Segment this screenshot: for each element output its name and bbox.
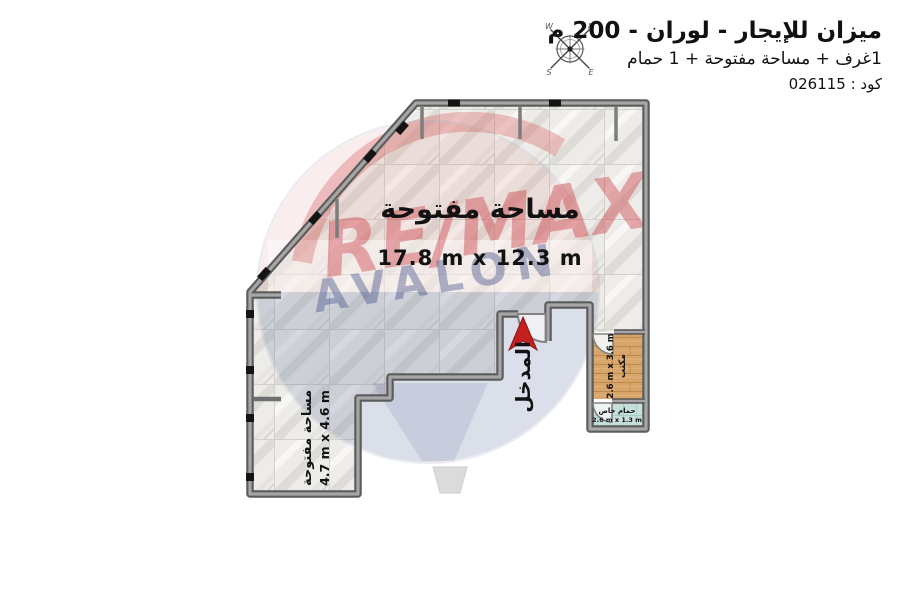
listing-header: ميزان للإيجار - لوران - 200 م 1غرف + مسا…	[548, 16, 882, 96]
main-area-dims: 17.8 m x 12.3 m	[330, 246, 630, 270]
bathroom-label: حمام خاص 2.6 m x 1.3 m	[588, 407, 646, 425]
secondary-area-dims: 4.7 m x 4.6 m	[316, 383, 333, 493]
main-area-label: مساحة مفتوحة	[330, 194, 630, 225]
office-name: مكتب	[617, 333, 629, 399]
office-label: 2.6 m x 3.6 m مكتب	[605, 333, 631, 399]
listing-code: كود : 026115	[548, 72, 882, 96]
bathroom-name: حمام خاص	[588, 407, 646, 416]
page-title: ميزان للإيجار - لوران - 200 م	[548, 16, 882, 47]
entrance-label: المدخل	[510, 332, 536, 422]
floor-plan-page: RE/MAX AVALON	[0, 0, 900, 600]
office-dims: 2.6 m x 3.6 m	[605, 333, 617, 399]
secondary-area-name: مساحة مفتوحة	[299, 383, 316, 493]
secondary-area-label: مساحة مفتوحة 4.7 m x 4.6 m	[299, 383, 335, 493]
listing-description: 1غرف + مساحة مفتوحة + 1 حمام	[548, 47, 882, 72]
bathroom-dims: 2.6 m x 1.3 m	[588, 416, 646, 425]
